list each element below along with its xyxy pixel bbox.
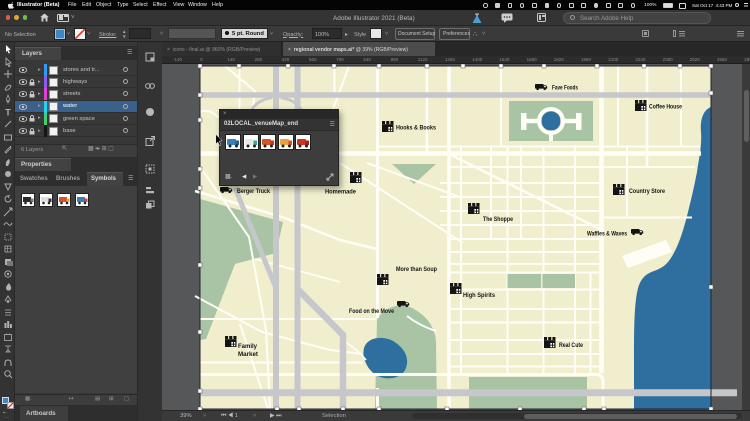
svg-text:Berger Truck: Berger Truck (237, 188, 270, 195)
svg-text:Waffles & Waves: Waffles & Waves (587, 231, 627, 238)
svg-text:Hooks & Books: Hooks & Books (396, 125, 436, 132)
svg-text:Market: Market (238, 351, 258, 358)
svg-text:Homemade: Homemade (325, 189, 357, 196)
svg-text:Real Cute: Real Cute (559, 342, 583, 349)
svg-text:T: T (5, 107, 11, 117)
svg-text:The Shoppe: The Shoppe (483, 216, 513, 223)
svg-text:Family: Family (238, 343, 258, 350)
svg-text:More than Soup: More than Soup (396, 266, 437, 273)
svg-text:Coffee House: Coffee House (649, 104, 682, 111)
svg-text:Food on the Move: Food on the Move (349, 308, 394, 315)
svg-text:Country Store: Country Store (629, 188, 665, 195)
svg-text:Fave Foods: Fave Foods (552, 85, 578, 92)
svg-text:High Spirits: High Spirits (463, 292, 496, 299)
